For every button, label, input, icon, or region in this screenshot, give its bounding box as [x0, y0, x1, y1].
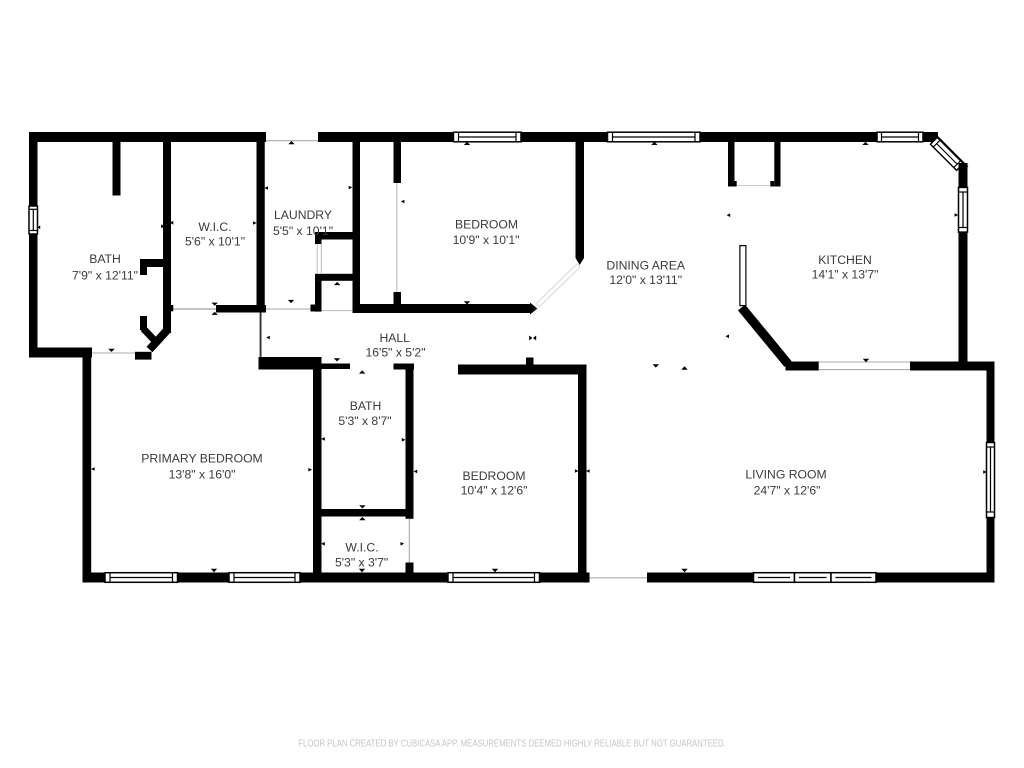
svg-text:FLOOR PLAN CREATED BY CUBICASA: FLOOR PLAN CREATED BY CUBICASA APP. MEAS… — [298, 738, 726, 749]
svg-text:PRIMARY BEDROOM: PRIMARY BEDROOM — [141, 452, 262, 466]
svg-text:5'6" x 10'1": 5'6" x 10'1" — [185, 235, 245, 249]
svg-text:LAUNDRY: LAUNDRY — [274, 208, 332, 222]
svg-text:W.I.C.: W.I.C. — [345, 541, 378, 555]
svg-text:5'3" x 8'7": 5'3" x 8'7" — [338, 414, 391, 428]
svg-text:24'7" x 12'6": 24'7" x 12'6" — [754, 484, 821, 498]
svg-text:14'1" x 13'7": 14'1" x 13'7" — [812, 267, 879, 281]
svg-text:BATH: BATH — [89, 252, 121, 266]
svg-text:12'0" x 13'11": 12'0" x 13'11" — [609, 273, 682, 287]
svg-text:5'5" x 10'1": 5'5" x 10'1" — [273, 224, 333, 238]
svg-text:10'9" x 10'1": 10'9" x 10'1" — [453, 233, 520, 247]
svg-text:16'5" x 5'2": 16'5" x 5'2" — [365, 346, 425, 360]
svg-text:10'4" x 12'6": 10'4" x 12'6" — [461, 484, 528, 498]
svg-text:LIVING ROOM: LIVING ROOM — [745, 468, 826, 482]
svg-text:W.I.C.: W.I.C. — [198, 220, 231, 234]
svg-text:7'9" x 12'11": 7'9" x 12'11" — [72, 269, 138, 283]
svg-text:KITCHEN: KITCHEN — [818, 253, 872, 267]
svg-text:BEDROOM: BEDROOM — [455, 218, 518, 232]
svg-text:HALL: HALL — [379, 331, 410, 345]
svg-text:BATH: BATH — [350, 399, 382, 413]
svg-text:DINING AREA: DINING AREA — [606, 259, 685, 273]
svg-text:5'3" x 3'7": 5'3" x 3'7" — [335, 556, 388, 570]
svg-text:BEDROOM: BEDROOM — [463, 469, 526, 483]
svg-text:13'8" x 16'0": 13'8" x 16'0" — [169, 468, 236, 482]
